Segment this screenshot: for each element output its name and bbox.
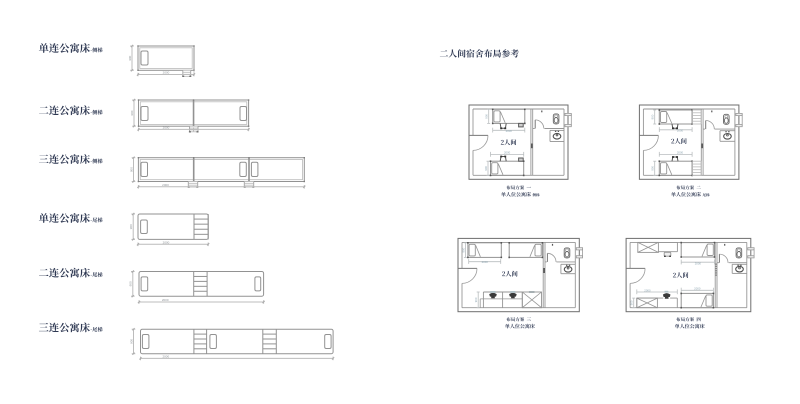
svg-text:2000: 2000 bbox=[163, 240, 170, 244]
svg-text:2000: 2000 bbox=[163, 71, 170, 75]
svg-text:2000: 2000 bbox=[162, 298, 169, 302]
svg-text:2000: 2000 bbox=[677, 151, 684, 155]
svg-text:2000: 2000 bbox=[504, 151, 511, 155]
svg-text:2000: 2000 bbox=[506, 129, 513, 133]
svg-text:900: 900 bbox=[129, 281, 133, 286]
svg-text:2000: 2000 bbox=[162, 183, 169, 187]
svg-text:900: 900 bbox=[630, 300, 634, 305]
svg-text:900: 900 bbox=[129, 224, 133, 229]
svg-text:2000: 2000 bbox=[695, 262, 702, 266]
svg-text:900: 900 bbox=[129, 167, 133, 172]
svg-text:2000: 2000 bbox=[694, 287, 701, 291]
svg-text:900: 900 bbox=[485, 114, 489, 119]
svg-text:900: 900 bbox=[461, 247, 465, 252]
svg-text:900: 900 bbox=[651, 166, 655, 171]
svg-text:900: 900 bbox=[484, 166, 488, 171]
svg-text:2000: 2000 bbox=[162, 354, 169, 358]
svg-text:900: 900 bbox=[128, 55, 132, 60]
svg-text:900: 900 bbox=[651, 114, 655, 119]
svg-text:900: 900 bbox=[130, 110, 134, 115]
svg-text:2000: 2000 bbox=[482, 260, 489, 264]
svg-text:2000: 2000 bbox=[644, 288, 651, 292]
svg-text:2000: 2000 bbox=[677, 129, 684, 133]
svg-text:900: 900 bbox=[474, 297, 478, 302]
svg-text:2000: 2000 bbox=[163, 125, 170, 129]
svg-text:900: 900 bbox=[129, 339, 133, 344]
